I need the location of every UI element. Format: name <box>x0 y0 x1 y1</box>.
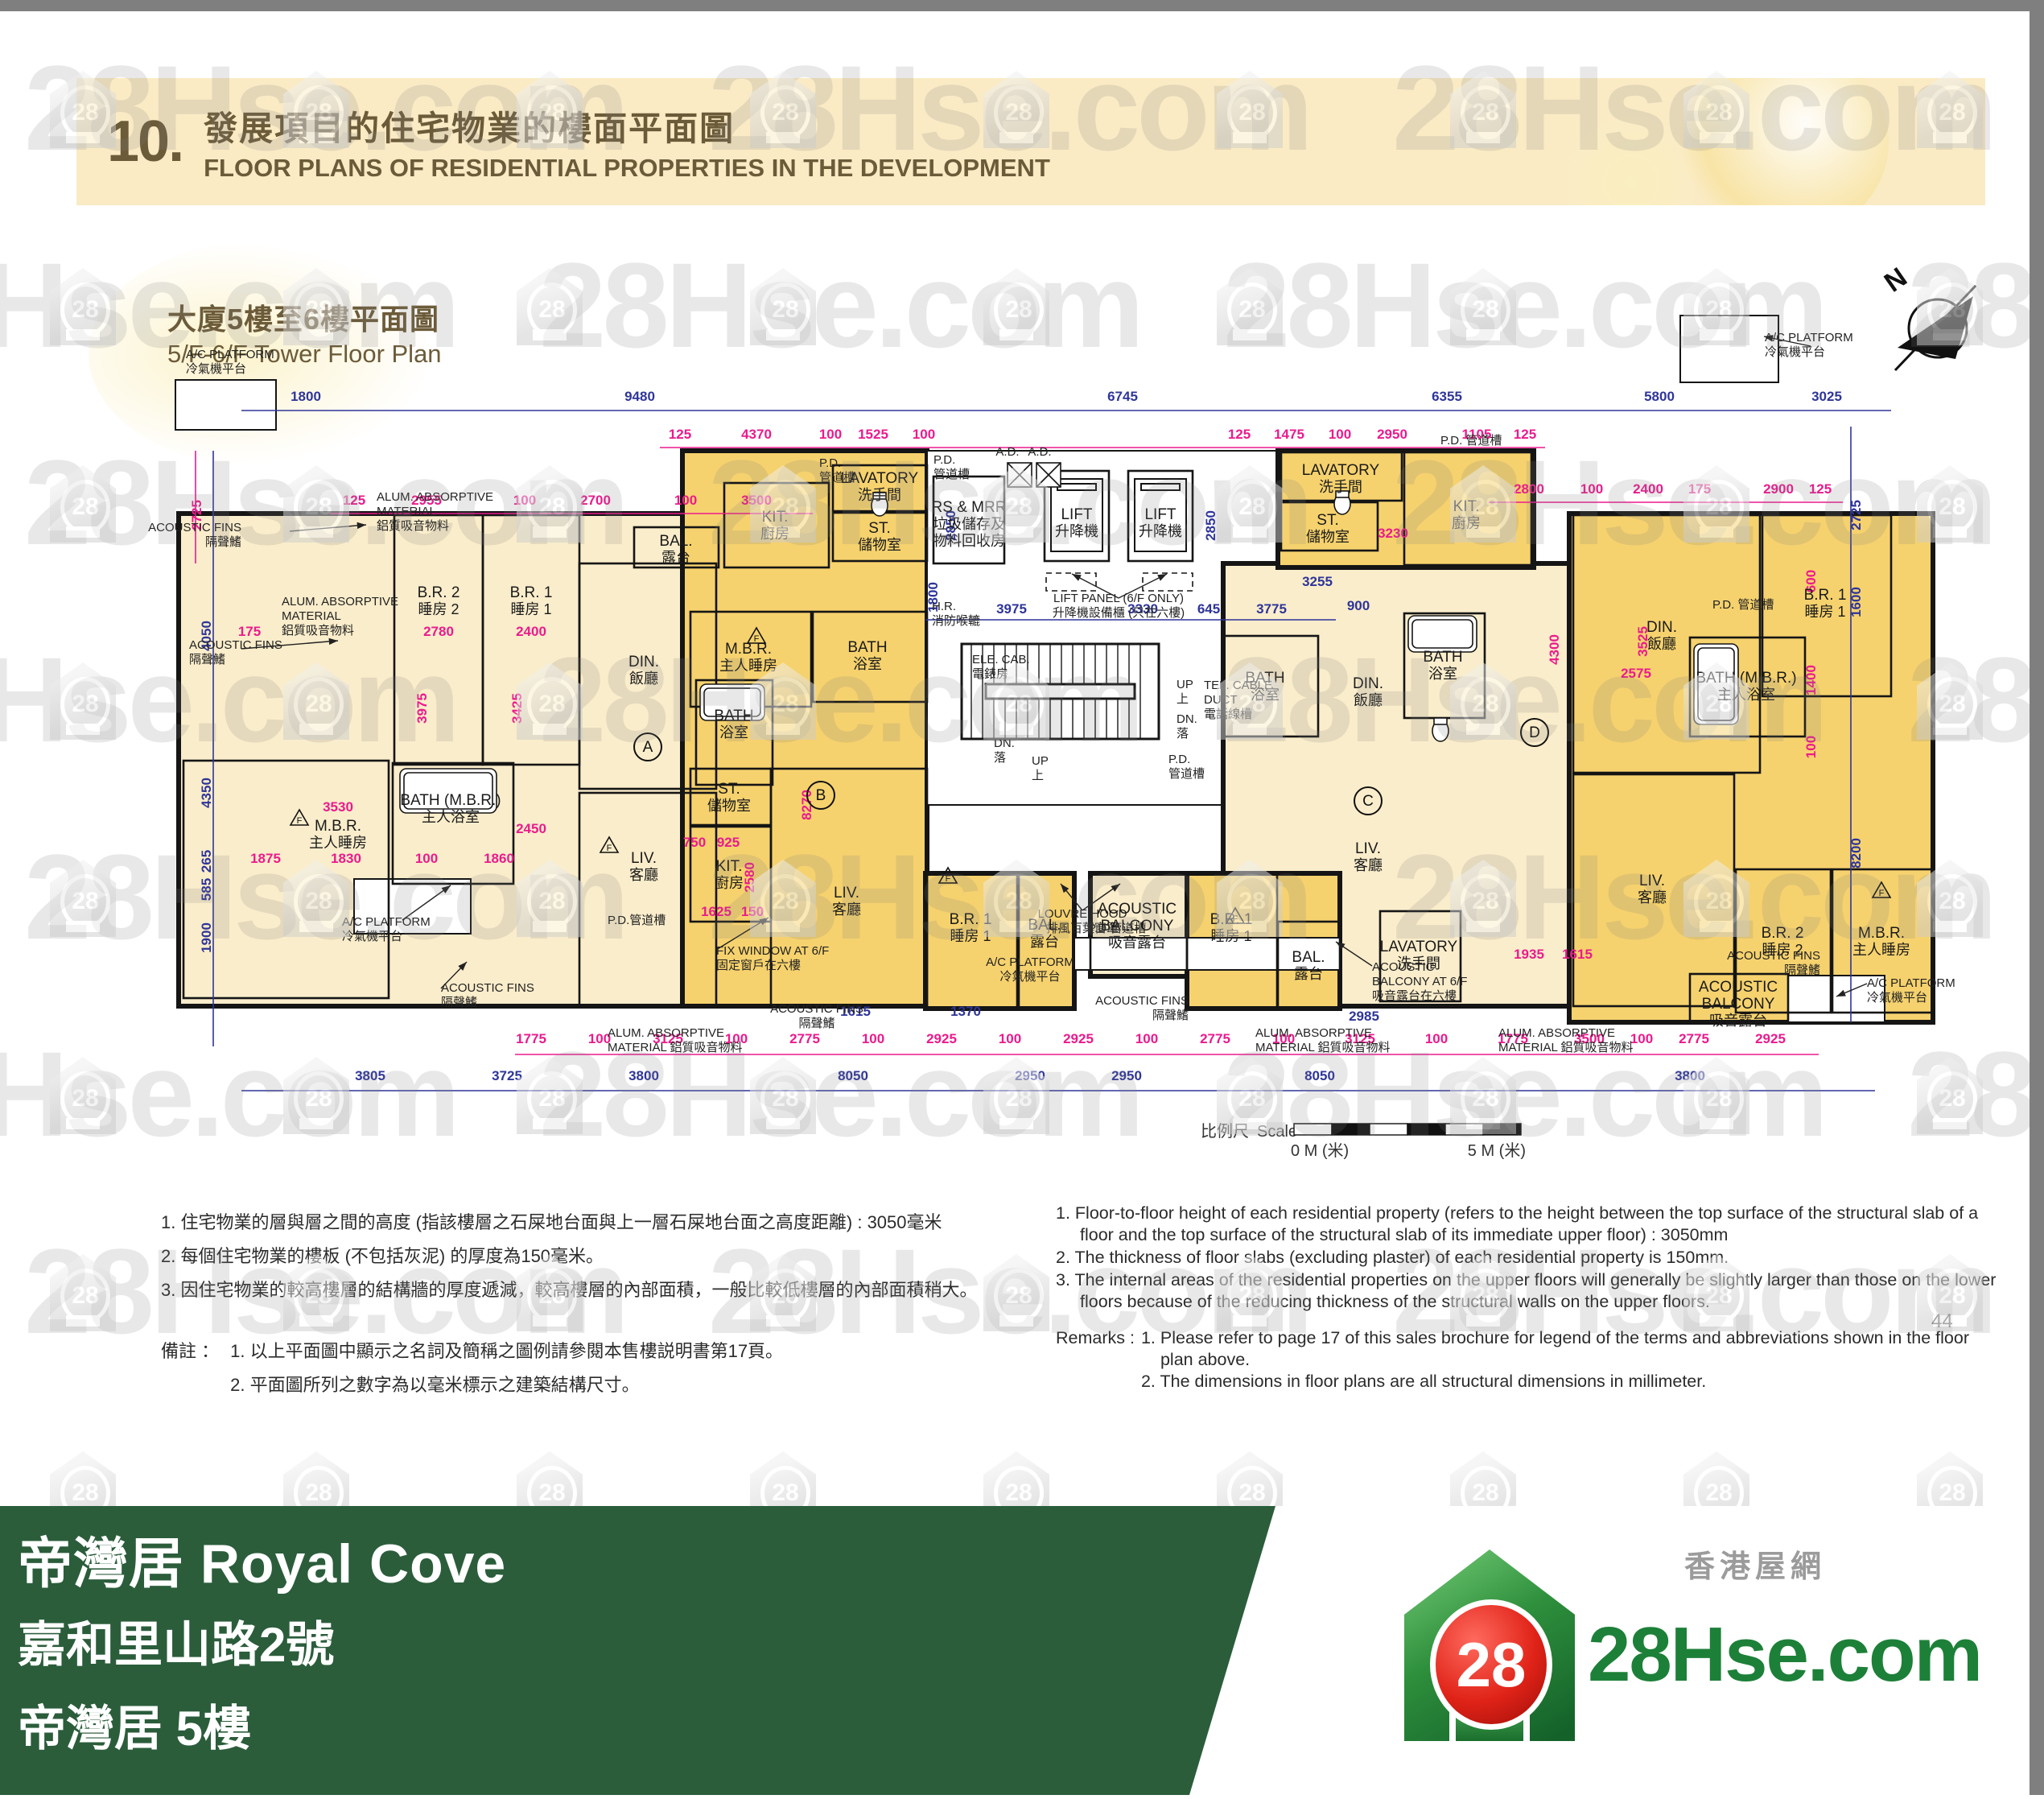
svg-text:2575: 2575 <box>1621 666 1651 681</box>
svg-text:9480: 9480 <box>624 389 655 404</box>
remarks-english-list: 1. Please refer to page 17 of this sales… <box>1141 1327 2001 1393</box>
notes-english: 1. Floor-to-floor height of each residen… <box>1056 1203 2001 1393</box>
svg-text:F: F <box>1233 914 1238 924</box>
svg-text:LIV.: LIV. <box>1355 840 1381 857</box>
svg-text:冷氣機平台: 冷氣機平台 <box>342 930 402 943</box>
svg-text:UP: UP <box>1177 678 1193 691</box>
svg-text:C: C <box>1362 793 1374 810</box>
svg-text:2800: 2800 <box>1514 481 1544 497</box>
svg-text:ST.: ST. <box>718 781 740 798</box>
svg-text:廚房: 廚房 <box>760 525 789 542</box>
svg-text:儲物室: 儲物室 <box>1306 529 1350 545</box>
svg-text:1800: 1800 <box>291 389 321 404</box>
svg-text:BAL.: BAL. <box>1028 917 1061 934</box>
notes-english-list: 1. Floor-to-floor height of each residen… <box>1056 1203 2001 1313</box>
svg-text:MATERIAL: MATERIAL <box>282 609 341 623</box>
svg-text:BALCONY: BALCONY <box>1101 918 1174 935</box>
svg-text:LAVATORY: LAVATORY <box>1302 462 1380 479</box>
svg-text:1400: 1400 <box>1803 665 1819 695</box>
svg-text:2580: 2580 <box>742 862 757 893</box>
svg-text:125: 125 <box>343 493 365 508</box>
svg-text:P.D.: P.D. <box>1168 753 1190 766</box>
svg-text:2780: 2780 <box>423 624 454 639</box>
svg-text:125: 125 <box>1228 427 1251 442</box>
page: { "header": { "number": "10.", "title_zh… <box>0 0 2044 1795</box>
svg-text:F: F <box>754 634 760 644</box>
svg-text:BATH: BATH <box>1423 649 1462 666</box>
svg-text:100: 100 <box>513 493 536 508</box>
svg-text:1625: 1625 <box>701 904 731 919</box>
note-line: 1. Floor-to-floor height of each residen… <box>1056 1203 2001 1246</box>
svg-text:1775: 1775 <box>516 1031 546 1046</box>
svg-text:2400: 2400 <box>1633 481 1663 497</box>
svg-text:ACOUSTIC FINS: ACOUSTIC FINS <box>1095 994 1189 1008</box>
svg-text:A/C PLATFORM: A/C PLATFORM <box>342 915 431 929</box>
svg-text:吸音露台: 吸音露台 <box>1709 1013 1767 1029</box>
svg-text:DN.: DN. <box>1177 712 1197 726</box>
svg-text:2775: 2775 <box>1200 1031 1230 1046</box>
svg-text:浴室: 浴室 <box>719 724 748 741</box>
svg-text:100: 100 <box>819 427 842 442</box>
note-line: 2. The dimensions in floor plans are all… <box>1141 1371 2001 1393</box>
svg-text:FIX WINDOW AT 6/F: FIX WINDOW AT 6/F <box>716 944 829 958</box>
svg-text:4350: 4350 <box>199 778 214 808</box>
svg-text:ST.: ST. <box>868 520 890 537</box>
svg-text:3425: 3425 <box>509 693 525 724</box>
svg-text:585: 585 <box>199 878 214 901</box>
svg-text:比例尺: 比例尺 <box>1201 1122 1249 1141</box>
svg-text:A/C PLATFORM: A/C PLATFORM <box>986 955 1074 969</box>
svg-text:飯廳: 飯廳 <box>629 670 658 687</box>
svg-text:ACOUSTIC: ACOUSTIC <box>1098 901 1177 918</box>
svg-text:1600: 1600 <box>1848 587 1864 617</box>
svg-text:3230: 3230 <box>1378 526 1408 541</box>
svg-text:LIV.: LIV. <box>1639 873 1665 889</box>
svg-text:鋁質吸音物料: 鋁質吸音物料 <box>377 518 449 533</box>
svg-text:1875: 1875 <box>250 851 281 866</box>
svg-text:3500: 3500 <box>741 493 772 508</box>
svg-text:ELE. CAB.: ELE. CAB. <box>972 653 1030 666</box>
svg-text:LAVATORY: LAVATORY <box>841 470 919 487</box>
svg-text:洗手間: 洗手間 <box>1397 955 1440 972</box>
svg-text:F: F <box>1879 889 1885 898</box>
svg-text:客廳: 客廳 <box>832 902 861 918</box>
svg-text:消防喉轆: 消防喉轆 <box>932 614 980 628</box>
svg-text:睡房 1: 睡房 1 <box>510 601 551 617</box>
svg-text:5800: 5800 <box>1644 389 1675 404</box>
svg-text:4300: 4300 <box>1547 634 1562 665</box>
svg-text:8050: 8050 <box>838 1068 868 1083</box>
svg-text:1900: 1900 <box>199 922 214 953</box>
svg-text:ACOUSTIC: ACOUSTIC <box>1699 979 1778 996</box>
remarks-label-en: Remarks : <box>1056 1327 1135 1393</box>
note-line: 3. The internal areas of the residential… <box>1056 1269 2001 1313</box>
svg-text:吸音露台在六樓: 吸音露台在六樓 <box>1372 989 1457 1003</box>
svg-text:電話線槽: 電話線槽 <box>1204 708 1252 721</box>
svg-text:升降機設備櫃 (只在六樓): 升降機設備櫃 (只在六樓) <box>1053 606 1185 620</box>
svg-text:3800: 3800 <box>1675 1068 1705 1083</box>
svg-text:150: 150 <box>741 904 764 919</box>
svg-text:BATH: BATH <box>1245 670 1284 687</box>
svg-text:管道槽: 管道槽 <box>1168 767 1205 781</box>
svg-text:睡房 1: 睡房 1 <box>1804 604 1845 620</box>
svg-text:900: 900 <box>1347 598 1370 613</box>
svg-text:主人浴室: 主人浴室 <box>1717 687 1775 703</box>
svg-text:ST.: ST. <box>1317 512 1338 529</box>
svg-text:100: 100 <box>1425 1031 1448 1046</box>
svg-text:2925: 2925 <box>1755 1031 1786 1046</box>
svg-text:升降機: 升降機 <box>1055 523 1098 539</box>
svg-text:1370: 1370 <box>950 1004 981 1019</box>
svg-text:925: 925 <box>717 835 740 850</box>
svg-text:電錶房: 電錶房 <box>972 667 1008 681</box>
svg-text:BATH: BATH <box>847 639 887 656</box>
svg-text:2450: 2450 <box>516 821 546 836</box>
svg-text:F: F <box>946 874 951 884</box>
svg-text:LIV.: LIV. <box>834 885 859 902</box>
svg-text:廚房: 廚房 <box>715 874 744 891</box>
svg-text:645: 645 <box>1197 601 1220 617</box>
svg-text:MATERIAL 鋁質吸音物料: MATERIAL 鋁質吸音物料 <box>608 1040 743 1054</box>
svg-text:BATH (M.B.R.): BATH (M.B.R.) <box>1696 670 1796 687</box>
svg-text:垃圾儲存及: 垃圾儲存及 <box>933 516 1005 532</box>
viewer-right-edge <box>2030 0 2044 1795</box>
svg-text:落: 落 <box>994 751 1006 765</box>
svg-text:睡房 2: 睡房 2 <box>1762 942 1803 958</box>
svg-text:KIT.: KIT. <box>716 858 743 875</box>
page-number: 44 <box>1931 1310 1953 1333</box>
svg-text:100: 100 <box>674 493 697 508</box>
svg-text:100: 100 <box>913 427 935 442</box>
svg-text:2400: 2400 <box>516 624 546 639</box>
svg-text:KIT.: KIT. <box>762 509 789 526</box>
svg-text:管道槽: 管道槽 <box>933 468 970 481</box>
estate-name: 帝灣居 Royal Cove <box>18 1519 506 1599</box>
svg-text:LIFT PANEL (6/F ONLY): LIFT PANEL (6/F ONLY) <box>1053 592 1184 605</box>
svg-text:儲物室: 儲物室 <box>707 798 751 814</box>
svg-text:隔聲鰭: 隔聲鰭 <box>441 996 477 1009</box>
svg-text:3800: 3800 <box>628 1068 659 1083</box>
svg-text:露台: 露台 <box>661 550 690 566</box>
svg-text:隔聲鰭: 隔聲鰭 <box>189 653 225 666</box>
svg-text:DIN.: DIN. <box>1353 675 1383 692</box>
svg-text:MATERIAL: MATERIAL <box>377 505 436 518</box>
svg-text:3530: 3530 <box>323 799 353 815</box>
svg-text:LIFT: LIFT <box>1144 506 1176 523</box>
svg-text:750: 750 <box>683 835 706 850</box>
svg-text:2925: 2925 <box>926 1031 957 1046</box>
svg-text:主人睡房: 主人睡房 <box>719 658 777 674</box>
svg-text:100: 100 <box>1630 1031 1653 1046</box>
svg-text:P.D. 管道槽: P.D. 管道槽 <box>1712 598 1774 612</box>
estate-address: 嘉和里山路2號 <box>18 1606 334 1676</box>
svg-text:上: 上 <box>1032 769 1044 782</box>
svg-text:隔聲鰭: 隔聲鰭 <box>205 535 241 549</box>
svg-text:2775: 2775 <box>1679 1031 1709 1046</box>
svg-text:UP: UP <box>1032 754 1049 768</box>
svg-text:ACOUSTIC FINS: ACOUSTIC FINS <box>189 638 282 652</box>
svg-text:P.D. 管道槽: P.D. 管道槽 <box>1440 434 1502 448</box>
svg-text:睡房 2: 睡房 2 <box>418 601 459 617</box>
svg-text:DIN.: DIN. <box>1646 619 1677 636</box>
svg-text:DN.: DN. <box>994 737 1015 750</box>
svg-text:冷氣機平台: 冷氣機平台 <box>1867 991 1927 1005</box>
svg-text:125: 125 <box>1514 427 1536 442</box>
note-line: 3. 因住宅物業的較高樓層的結構牆的厚度遞減，較高樓層的內部面積，一般比較低樓層… <box>161 1273 1022 1307</box>
svg-text:1830: 1830 <box>331 851 361 866</box>
svg-text:隔聲鰭: 隔聲鰭 <box>1784 963 1820 977</box>
svg-text:M.B.R.: M.B.R. <box>315 818 361 835</box>
svg-text:A.D.: A.D. <box>1028 445 1051 459</box>
note-line: 2. 平面圖所列之數字為以毫米標示之建築結構尺寸。 <box>230 1368 783 1402</box>
svg-text:固定窗戶在六樓: 固定窗戶在六樓 <box>716 958 801 972</box>
svg-text:B.R. 1: B.R. 1 <box>1804 587 1847 604</box>
svg-text:ALUM. ABSORPTIVE: ALUM. ABSORPTIVE <box>608 1026 724 1040</box>
svg-text:鋁質吸音物料: 鋁質吸音物料 <box>282 623 354 637</box>
svg-text:B.R. 1: B.R. 1 <box>510 584 553 601</box>
svg-text:客廳: 客廳 <box>1354 857 1383 873</box>
svg-text:1475: 1475 <box>1274 427 1304 442</box>
svg-text:洗手間: 洗手間 <box>1319 479 1362 495</box>
note-line: 2. 每個住宅物業的樓板 (不包括灰泥) 的厚度為150毫米。 <box>161 1240 1022 1273</box>
svg-text:洗手間: 洗手間 <box>858 487 901 503</box>
svg-text:8200: 8200 <box>1848 838 1864 869</box>
svg-text:ALUM. ABSORPTIVE: ALUM. ABSORPTIVE <box>1498 1026 1615 1040</box>
svg-text:A/C PLATFORM: A/C PLATFORM <box>1765 331 1853 345</box>
svg-text:6355: 6355 <box>1432 389 1462 404</box>
svg-text:物料回收房: 物料回收房 <box>933 533 1005 549</box>
svg-text:2950: 2950 <box>1111 1068 1142 1083</box>
svg-text:Scale: Scale <box>1257 1123 1297 1141</box>
notes-chinese-list: 1. 住宅物業的層與層之間的高度 (指該樓層之石屎地台面與上一層石屎地台面之高度… <box>161 1206 1022 1307</box>
svg-text:主人睡房: 主人睡房 <box>309 835 367 851</box>
svg-text:飯廳: 飯廳 <box>1647 636 1676 652</box>
svg-text:H.R.: H.R. <box>932 600 956 613</box>
logo-tagline: 香港屋網 <box>1684 1541 1826 1586</box>
site-logo: 28 香港屋網 28Hse.com <box>1404 1541 1984 1767</box>
svg-text:100: 100 <box>1803 736 1819 758</box>
svg-text:125: 125 <box>669 427 691 442</box>
svg-text:吸音露台: 吸音露台 <box>1108 935 1166 951</box>
svg-text:露台: 露台 <box>1030 934 1059 950</box>
svg-text:冷氣機平台: 冷氣機平台 <box>1765 345 1825 359</box>
svg-text:RS & MRR: RS & MRR <box>932 499 1007 516</box>
svg-text:ACOUSTIC FINS: ACOUSTIC FINS <box>770 1002 863 1016</box>
svg-text:落: 落 <box>1177 727 1189 741</box>
note-line: 1. 住宅物業的層與層之間的高度 (指該樓層之石屎地台面與上一層石屎地台面之高度… <box>161 1206 1022 1240</box>
svg-text:ALUM. ABSORPTIVE: ALUM. ABSORPTIVE <box>377 490 493 504</box>
svg-text:4370: 4370 <box>741 427 772 442</box>
svg-text:P.D.: P.D. <box>819 456 841 470</box>
svg-text:6745: 6745 <box>1107 389 1138 404</box>
svg-text:浴室: 浴室 <box>853 656 882 672</box>
svg-text:100: 100 <box>862 1031 884 1046</box>
svg-text:睡房 1: 睡房 1 <box>1210 928 1251 944</box>
svg-text:A.D.: A.D. <box>995 445 1019 459</box>
svg-text:A/C PLATFORM: A/C PLATFORM <box>186 348 274 361</box>
notes-chinese: 1. 住宅物業的層與層之間的高度 (指該樓層之石屎地台面與上一層石屎地台面之高度… <box>161 1206 1022 1402</box>
svg-text:BATH (M.B.R.): BATH (M.B.R.) <box>400 792 501 809</box>
svg-text:3025: 3025 <box>1811 389 1842 404</box>
svg-text:MATERIAL 鋁質吸音物料: MATERIAL 鋁質吸音物料 <box>1255 1040 1391 1054</box>
svg-text:B.R. 2: B.R. 2 <box>418 584 460 601</box>
svg-text:BATH: BATH <box>714 708 753 724</box>
svg-text:B.R. 2: B.R. 2 <box>1762 925 1804 942</box>
svg-text:100: 100 <box>999 1031 1021 1046</box>
svg-text:客廳: 客廳 <box>1638 889 1667 906</box>
svg-text:A/C PLATFORM: A/C PLATFORM <box>1867 976 1955 990</box>
svg-text:B.R. 1: B.R. 1 <box>950 911 992 928</box>
logo-28-badge: 28 <box>1430 1599 1552 1730</box>
svg-text:175: 175 <box>1688 481 1711 497</box>
svg-text:175: 175 <box>238 624 261 639</box>
svg-text:100: 100 <box>1135 1031 1158 1046</box>
svg-text:主人浴室: 主人浴室 <box>422 809 480 825</box>
svg-text:1935: 1935 <box>1514 947 1544 962</box>
svg-text:D: D <box>1529 724 1540 741</box>
svg-text:浴室: 浴室 <box>1428 666 1457 682</box>
svg-text:客廳: 客廳 <box>629 867 658 883</box>
svg-text:隔聲鰭: 隔聲鰭 <box>1152 1009 1189 1022</box>
note-line: 2. The thickness of floor slabs (excludi… <box>1056 1247 2001 1269</box>
svg-text:B: B <box>816 787 826 804</box>
svg-text:100: 100 <box>1580 481 1603 497</box>
svg-text:2950: 2950 <box>1015 1068 1045 1083</box>
svg-text:2950: 2950 <box>1377 427 1407 442</box>
svg-text:1525: 1525 <box>858 427 888 442</box>
svg-text:ACOUSTIC FINS: ACOUSTIC FINS <box>441 981 534 995</box>
svg-text:BAL.: BAL. <box>1292 949 1325 966</box>
svg-text:廚房: 廚房 <box>1452 514 1481 531</box>
svg-text:飯廳: 飯廳 <box>1354 692 1383 708</box>
svg-text:2725: 2725 <box>1848 500 1864 530</box>
svg-text:3975: 3975 <box>996 601 1027 617</box>
svg-text:冷氣機平台: 冷氣機平台 <box>186 362 246 376</box>
note-line: 1. Please refer to page 17 of this sales… <box>1141 1327 2001 1371</box>
svg-text:3805: 3805 <box>355 1068 385 1083</box>
svg-text:100: 100 <box>1329 427 1351 442</box>
svg-text:主人睡房: 主人睡房 <box>1852 942 1910 958</box>
svg-text:8050: 8050 <box>1304 1068 1335 1083</box>
estate-floor: 帝灣居 5樓 <box>18 1690 251 1760</box>
svg-text:DUCT: DUCT <box>1204 693 1238 707</box>
svg-text:3975: 3975 <box>414 693 430 724</box>
svg-text:3775: 3775 <box>1256 601 1287 617</box>
svg-text:睡房 1: 睡房 1 <box>950 928 991 944</box>
svg-text:2985: 2985 <box>1349 1009 1379 1024</box>
svg-text:P.D.管道槽: P.D.管道槽 <box>608 914 666 927</box>
svg-text:BALCONY AT 6/F: BALCONY AT 6/F <box>1372 975 1467 988</box>
svg-text:浴室: 浴室 <box>1251 687 1280 703</box>
note-line: 1. 以上平面圖中顯示之名詞及簡稱之圖例請參閱本售樓説明書第17頁。 <box>230 1335 783 1368</box>
svg-text:2700: 2700 <box>580 493 611 508</box>
svg-text:P.D.: P.D. <box>933 453 955 467</box>
svg-text:0 M (米): 0 M (米) <box>1291 1141 1349 1160</box>
svg-text:125: 125 <box>1809 481 1832 497</box>
svg-text:ACOUSTIC FINS: ACOUSTIC FINS <box>148 521 241 534</box>
svg-text:5 M (米): 5 M (米) <box>1468 1141 1526 1160</box>
svg-text:隔聲鰭: 隔聲鰭 <box>798 1017 834 1030</box>
svg-text:F: F <box>607 844 612 853</box>
svg-text:2850: 2850 <box>1203 510 1218 541</box>
svg-text:LAVATORY: LAVATORY <box>1380 939 1458 955</box>
svg-text:儲物室: 儲物室 <box>858 537 901 553</box>
svg-text:上: 上 <box>1177 692 1189 706</box>
viewer-top-edge <box>0 0 2044 11</box>
svg-text:2775: 2775 <box>789 1031 820 1046</box>
logo-site-text: 28Hse.com <box>1588 1611 1981 1699</box>
svg-text:1615: 1615 <box>1562 947 1593 962</box>
svg-text:N: N <box>1879 262 1913 298</box>
svg-text:3725: 3725 <box>492 1068 522 1083</box>
svg-text:露台: 露台 <box>1294 966 1323 982</box>
svg-text:KIT.: KIT. <box>1453 498 1480 515</box>
svg-text:265: 265 <box>199 850 214 873</box>
svg-text:M.B.R.: M.B.R. <box>1858 925 1905 942</box>
svg-text:2900: 2900 <box>1763 481 1794 497</box>
svg-text:2925: 2925 <box>1063 1031 1094 1046</box>
svg-text:LIFT: LIFT <box>1061 506 1092 523</box>
svg-text:F: F <box>297 816 303 826</box>
svg-text:MATERIAL 鋁質吸音物料: MATERIAL 鋁質吸音物料 <box>1498 1040 1634 1054</box>
svg-text:3255: 3255 <box>1302 574 1333 589</box>
svg-text:DIN.: DIN. <box>628 654 659 670</box>
svg-text:1860: 1860 <box>484 851 514 866</box>
svg-text:ALUM. ABSORPTIVE: ALUM. ABSORPTIVE <box>1255 1026 1372 1040</box>
svg-text:100: 100 <box>415 851 438 866</box>
remarks-chinese-list: 1. 以上平面圖中顯示之名詞及簡稱之圖例請參閱本售樓説明書第17頁。2. 平面圖… <box>230 1335 783 1402</box>
svg-text:ALUM. ABSORPTIVE: ALUM. ABSORPTIVE <box>282 595 398 609</box>
north-arrow-icon: N <box>1879 262 1976 370</box>
svg-text:LIV.: LIV. <box>631 850 657 867</box>
svg-text:升降機: 升降機 <box>1139 523 1182 539</box>
svg-text:A: A <box>643 739 653 756</box>
svg-text:冷氣機平台: 冷氣機平台 <box>999 970 1060 984</box>
remarks-label-zh: 備註 ： <box>161 1335 219 1402</box>
svg-text:BALCONY: BALCONY <box>1702 996 1775 1013</box>
svg-text:BAL.: BAL. <box>659 533 692 550</box>
scale-bar: 比例尺Scale0 M (米)5 M (米) <box>1201 1122 1526 1160</box>
